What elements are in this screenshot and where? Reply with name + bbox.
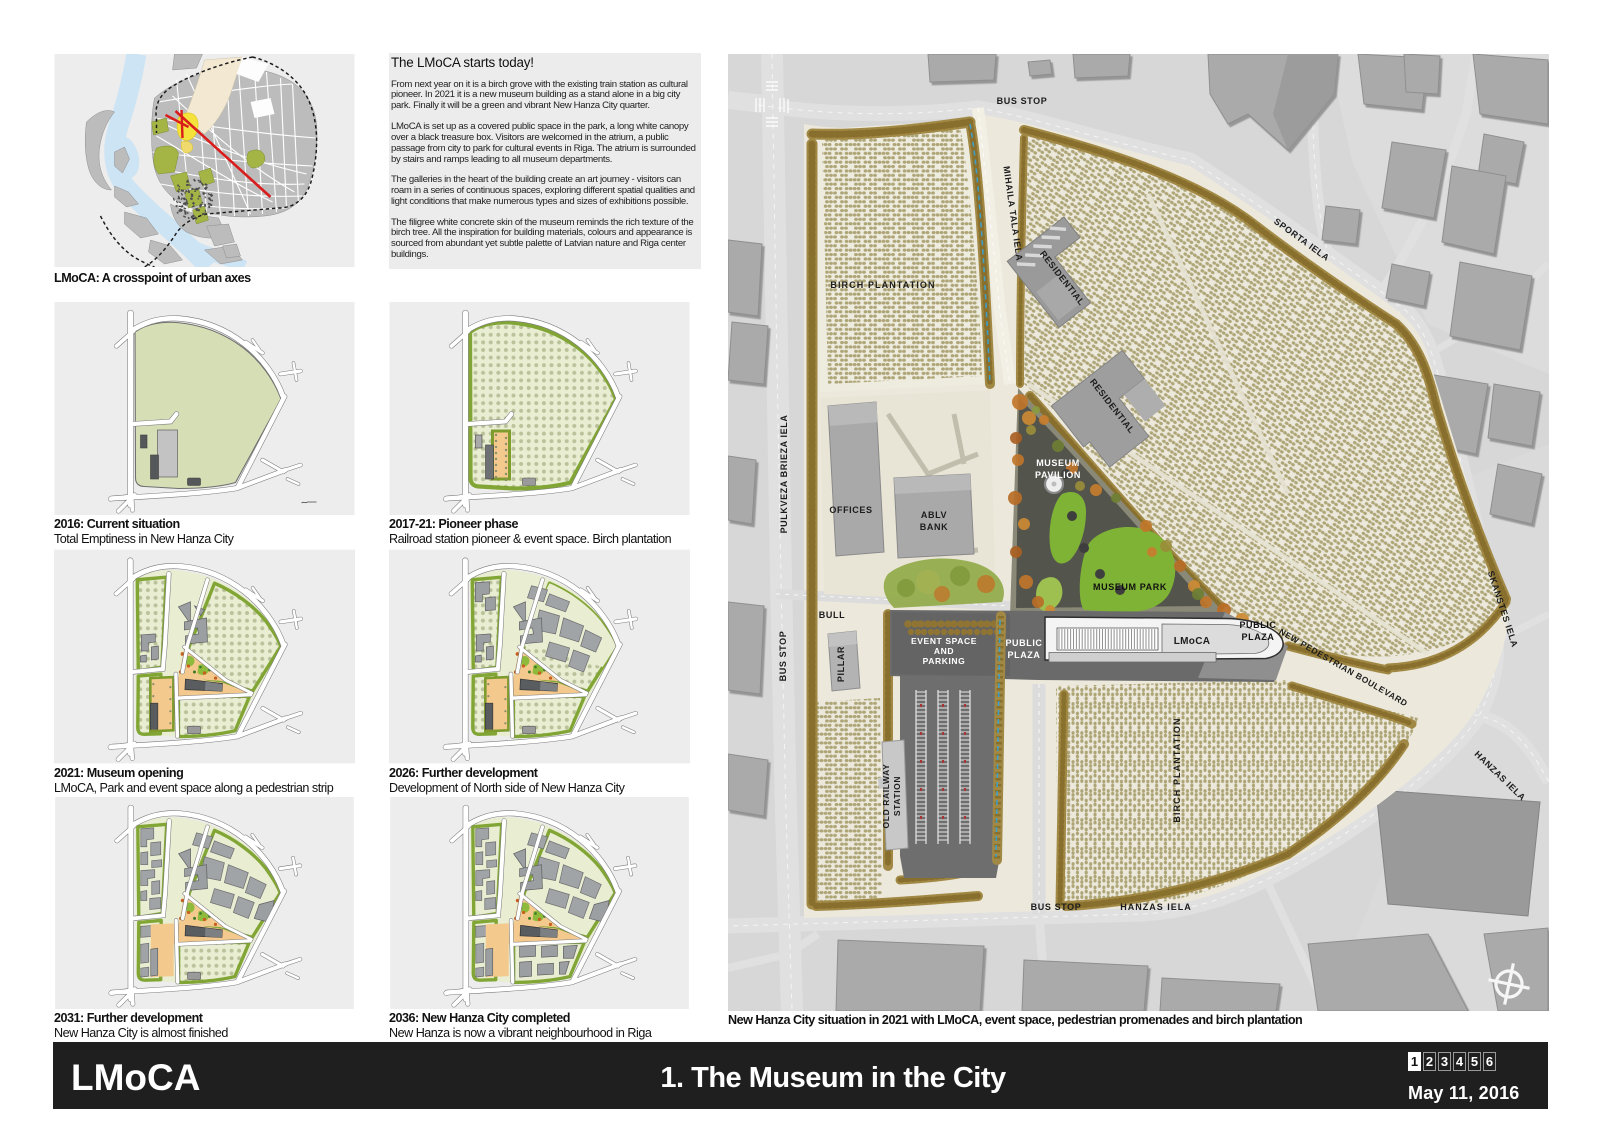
svg-text:AND: AND (934, 646, 954, 656)
svg-text:PARKING: PARKING (923, 656, 966, 666)
svg-text:STATION: STATION (892, 776, 902, 816)
svg-text:PAVILION: PAVILION (1035, 470, 1081, 480)
svg-text:BUS STOP: BUS STOP (778, 631, 788, 682)
svg-text:PLAZA: PLAZA (1008, 650, 1041, 660)
svg-text:MUSEUM PARK: MUSEUM PARK (1093, 582, 1167, 592)
svg-text:ABLV: ABLV (921, 510, 947, 520)
svg-text:BANK: BANK (920, 522, 948, 532)
svg-text:PUBLIC: PUBLIC (1239, 620, 1276, 630)
svg-text:MUSEUM: MUSEUM (1036, 458, 1080, 468)
svg-text:OFFICES: OFFICES (829, 505, 872, 515)
svg-text:BUS STOP: BUS STOP (997, 96, 1048, 106)
svg-text:BIRCH PLANTATION: BIRCH PLANTATION (830, 280, 935, 290)
svg-text:PULKVEZA BRIEZA IELA: PULKVEZA BRIEZA IELA (779, 415, 789, 534)
svg-text:EVENT SPACE: EVENT SPACE (911, 636, 977, 646)
svg-text:PUBLIC: PUBLIC (1005, 638, 1042, 648)
svg-text:PILLAR: PILLAR (836, 646, 846, 682)
svg-text:BUS STOP: BUS STOP (1031, 902, 1082, 912)
svg-text:LMoCA: LMoCA (1174, 636, 1211, 647)
svg-text:BIRCH PLANTATION: BIRCH PLANTATION (1172, 717, 1182, 822)
svg-text:BULL: BULL (819, 610, 845, 620)
svg-text:HANZAS IELA: HANZAS IELA (1120, 902, 1192, 912)
svg-text:OLD RAILWAY: OLD RAILWAY (881, 764, 891, 829)
svg-text:PLAZA: PLAZA (1242, 632, 1275, 642)
